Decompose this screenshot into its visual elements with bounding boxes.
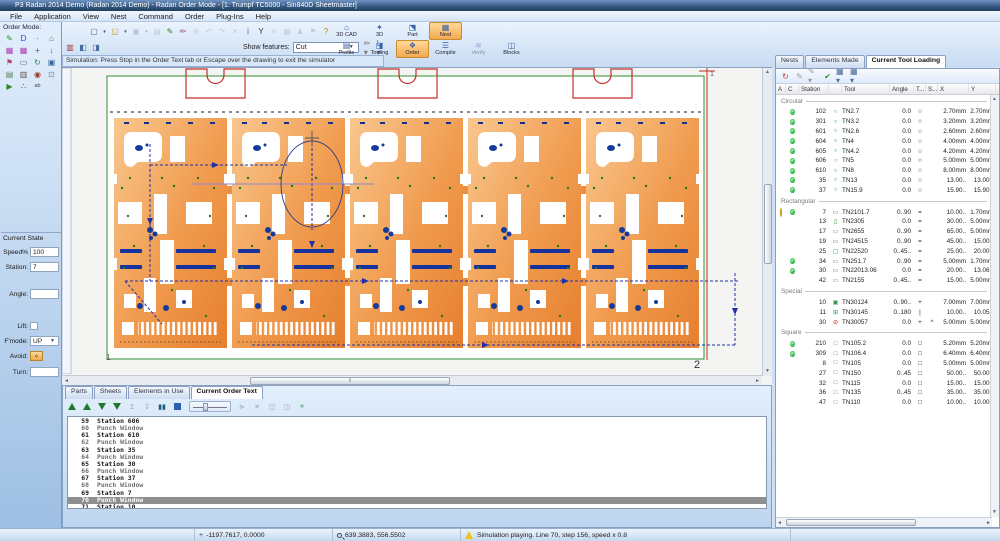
type-symbol-cell: □ [914,399,926,406]
station-cell: 11 [799,309,829,316]
station-cell: 30 [799,319,829,326]
type-symbol-cell: ○ [914,118,926,125]
line-text: Station 10 [97,503,135,509]
pattern1-icon[interactable]: ▦ [3,45,16,57]
angle-cell: 0..45 [890,389,914,396]
y-cell: 10.05.. [969,309,990,316]
y-cell: 1.70mm [969,258,990,265]
tool-shape-icon: ▭ [829,258,842,265]
check-icon: ✓ [790,177,794,183]
y-cell: 2.60mm [969,128,990,135]
module-3d-cad-label: 3D CAD [336,32,357,38]
tool-shape-icon: □ [829,351,842,357]
check-cell: ✓ [786,257,799,265]
run-to-start-button[interactable] [65,400,79,413]
module-compile[interactable]: ☰Compile [429,40,462,58]
check-cell: ✓ [786,350,799,358]
tool-group-special: Special [776,286,990,298]
warning-cell [776,209,786,216]
station-cell: 10 [799,299,829,306]
angle-cell: 0..90 [890,228,914,235]
x-cell: 5.00mm [938,319,969,326]
check-icon: ✓ [790,128,794,134]
order-line[interactable]: 68Punch Window [68,482,766,489]
tool-shape-icon: ▭ [829,228,842,235]
module-tooling[interactable]: ◨Tooling [363,40,396,58]
scrollbar-thumb[interactable] [786,519,916,526]
station-cell: 19 [799,238,829,245]
tab-current-tool-loading[interactable]: Current Tool Loading [866,55,947,68]
angle-cell: 0.0 [890,157,914,164]
angle-cell: 0..90 [890,258,914,265]
tool-row[interactable]: 8□TN1050.0□5.00mm5.00mm [776,359,990,369]
order-line[interactable]: 69Station 7 [68,490,766,497]
order-line[interactable]: 67Station 37 [68,475,766,482]
module-tooling-label: Tooling [371,50,389,56]
column-header[interactable]: T... [914,84,926,95]
tool-shape-icon: □ [829,341,842,347]
line-number: 71 [74,504,89,509]
target-icon[interactable]: ◉ [31,69,44,81]
copy-icon[interactable]: ▣ [45,57,58,69]
y-cell: 20.00.. [969,248,990,255]
y-cell: 8.00mm [969,167,990,174]
station-cell: 301 [799,118,829,125]
play-back-button[interactable] [80,400,94,413]
type-symbol-cell: □ [914,389,926,396]
station-cell: 47 [799,399,829,406]
station-cell: 604 [799,138,829,145]
tool-group-square: Square [776,327,990,339]
order-line[interactable]: 59Station 606 [68,418,766,425]
block2-button[interactable]: ◫ [280,400,294,413]
x-cell: 30.00.. [938,218,969,225]
order-line[interactable]: 62Punch Window [68,439,766,446]
tool-shape-icon: ○ [829,128,842,134]
y-cell: 6.40mm [969,350,990,357]
menu-view[interactable]: View [77,12,105,21]
station-cell: 610 [799,167,829,174]
tool-shape-icon: ▭ [829,238,842,245]
tool-row[interactable]: 32□TN1150.0□15.00..15.00.. [776,378,990,388]
y-cell: 15.00.. [969,238,990,245]
module-part-icon: ⬔ [409,24,417,32]
magnifier-icon [337,533,342,538]
order-text-list[interactable]: 59Station 60660Punch Window61Station 610… [67,416,767,509]
tab-nests[interactable]: Nests [775,55,804,68]
left-sidebar: Order Mode: ✎D·⌂▦▦+↓⚑▭↻▣▤▥◉⊡▶∴ᵃᵇ Current… [0,22,62,528]
check-cell: ✓ [786,137,799,145]
x-cell: 35.00.. [938,389,969,396]
nested-parts [114,118,699,348]
station-cell: 601 [799,128,829,135]
step-back-button[interactable]: ↥ [125,400,139,413]
tool-row[interactable]: ✓210□TN105.20.0□5.20mm5.20mm [776,339,990,349]
tool-shape-icon: ▣ [829,299,842,306]
type-symbol-cell: ○ [914,148,926,155]
rotate-icon[interactable]: ↻ [31,57,44,69]
menu-application[interactable]: Application [28,12,77,21]
run-to-end-button[interactable] [110,400,124,413]
order-line-selected[interactable]: 70Punch Window [68,497,766,504]
column-header[interactable]: Station [799,84,829,95]
tool-row[interactable]: 30⊘TN300570.0+^5.00mm5.00mm [776,317,990,327]
type-symbol-cell: ○ [914,108,926,115]
tool-table-horizontal-scrollbar[interactable]: ◄► [776,517,992,527]
x-cell: 15.00.. [938,380,969,387]
x-cell: 10.00.. [938,309,969,316]
type-symbol-cell: = [914,238,926,245]
tool-row[interactable]: ✓30▭TN22013.060.0=20.00..13.06.. [776,266,990,276]
column-header[interactable]: Angle [890,84,914,95]
tool-row[interactable]: ✓34▭TN251.70..90=5.00mm1.70mm [776,256,990,266]
column-header[interactable]: C [786,84,799,95]
x-cell: 15.90.. [938,187,969,194]
column-header[interactable]: Tool [842,84,890,95]
jump-button[interactable]: ⊳ [235,400,249,413]
y-cell: 4.00mm [969,138,990,145]
column-header[interactable]: Y [969,84,996,95]
tool-shape-icon: ⊘ [829,319,842,326]
check-cell: ✓ [786,208,799,216]
tool-row[interactable]: ✓35○TN130.0○13.00..13.00.. [776,176,990,186]
tool-row[interactable]: ✓37○TN15.90.0○15.90..15.90.. [776,185,990,195]
tool-shape-icon: □ [829,360,842,366]
type-symbol-cell: + [914,299,926,306]
menu-order[interactable]: Order [179,12,210,21]
station-cell: 32 [799,380,829,387]
order-line[interactable]: 71Station 10 [68,504,766,509]
station-cell: 27 [799,370,829,377]
column-header[interactable]: A [776,84,786,95]
check-cell: ✓ [786,147,799,155]
module-3d-label: 3D [376,32,383,38]
x-cell: 4.20mm [938,148,969,155]
tool-name-cell: TN105 [842,360,890,367]
order-line[interactable]: 60Punch Window [68,425,766,432]
order-line[interactable]: 66Punch Window [68,468,766,475]
module-part-label: Part [407,32,417,38]
tool-row[interactable]: 19▭TN245150..90=45.00..15.00.. [776,237,990,247]
play-forward-button[interactable] [95,400,109,413]
check-cell: ✓ [786,186,799,194]
pause-button[interactable]: ▮▮ [155,400,169,413]
right-panel: NestsElements MadeCurrent Tool Loading ↻… [775,55,1000,528]
arrow-down-icon[interactable]: ↓ [45,45,58,57]
tool-row[interactable]: 25▢TN225200..45..=25.00..20.00.. [776,246,990,256]
type-symbol-cell: □ [914,340,926,347]
apply-check-icon[interactable]: ✔ [821,70,834,82]
y-cell: 5.00mm [969,157,990,164]
type-symbol-cell: □ [914,380,926,387]
edit-multi-icon[interactable]: ✎ ▾ [807,70,820,82]
y-cell: 5.00mm [969,319,990,326]
x-cell: 10.00.. [938,399,969,406]
tool-row[interactable]: 47□TN1100.0□10.00..10.00.. [776,398,990,408]
order-line[interactable]: 61Station 610 [68,432,766,439]
check-icon: ✓ [790,138,794,144]
angle-cell: 0.0 [890,360,914,367]
angle-cell: 0.0 [890,167,914,174]
angle-cell: 0..90.. [890,299,914,306]
tool-table-header: ACStationToolAngleT...S...XY [776,84,999,95]
disk-icon[interactable]: ⊡ [45,69,58,81]
menu-nest[interactable]: Nest [105,12,132,21]
tool-name-cell: TN2.7 [842,108,890,115]
tool-shape-icon: ○ [829,148,842,154]
tool-name-cell: TN3.2 [842,118,890,125]
type-symbol-cell: = [914,248,926,255]
angle-cell: 0.0 [890,319,914,326]
station-cell: 25 [799,248,829,255]
tool-row[interactable]: ✓7▭TN2101.70..90=10.00..1.70mm [776,207,990,217]
tool-name-cell: TN5 [842,157,890,164]
cut-line-button[interactable]: ✕ [250,400,264,413]
dots-icon[interactable]: ∴ [17,81,30,93]
tool-table-vertical-scrollbar[interactable]: ▲▼ [990,95,999,517]
tool-row[interactable]: 10▣TN301240..90..+7.00mm7.00mm [776,298,990,308]
tab-sheets[interactable]: Sheets [94,386,127,399]
title-bar: P3 Radan 2014 Demo (Radan 2014 Demo) - R… [0,0,1000,11]
module-verify-label: Verify [472,50,486,56]
tool-row[interactable]: ✓601○TN2.60.0○2.60mm2.60mm [776,127,990,137]
tool-name-cell: TN115 [842,380,890,387]
tool-shape-icon: ⊞ [829,309,842,316]
tool-name-cell: TN2155 [842,277,890,284]
menu-plugins[interactable]: Plug-Ins [210,12,250,21]
module-order-label: Order [405,50,419,56]
station-cell: 13 [799,218,829,225]
angle-cell: 0.0 [890,148,914,155]
tool-row[interactable]: ✓604○TN40.0○4.00mm4.00mm [776,136,990,146]
go-icon[interactable]: ▶ [3,81,16,93]
tool-shape-icon: □ [829,380,842,386]
station-cell: 42 [799,277,829,284]
check-cell: ✓ [786,340,799,348]
menu-command[interactable]: Command [132,12,179,21]
tool-name-cell: TN2101.7 [842,209,890,216]
x-cell: 10.00.. [938,209,969,216]
chevron-down-icon: ▼ [50,337,57,346]
tool-name-cell: TN8 [842,167,890,174]
tool-shape-icon: ○ [829,187,842,193]
angle-cell: 0..45.. [890,248,914,255]
station-cell: 8 [799,360,829,367]
y-cell: 10.00.. [969,399,990,406]
order-line[interactable]: 63Station 35 [68,447,766,454]
tool-shape-icon: ▭ [829,267,842,274]
view-grid2-dropdown[interactable]: ▦ ▾ [849,70,862,82]
house-icon[interactable]: ⌂ [45,33,58,45]
crosshair-icon: + [199,532,203,539]
y-cell: 7.00mm [969,299,990,306]
tool-row[interactable]: 11⊞TN301450..180|10.00..10.05.. [776,307,990,317]
column-header[interactable]: X [938,84,969,95]
column-header[interactable] [829,84,842,95]
window-title: P3 Radan 2014 Demo (Radan 2014 Demo) - R… [15,2,357,9]
tab-current-order-text[interactable]: Current Order Text [191,386,263,399]
station-cell: 35 [799,177,829,184]
tool-shape-icon: ○ [829,109,842,115]
abc-icon[interactable]: ᵃᵇ [31,81,44,93]
tool-name-cell: TN22520 [842,248,890,255]
module-3d-cad[interactable]: ⌂3D CAD [330,22,363,40]
check-icon: ✓ [790,258,794,264]
pattern2-icon[interactable]: ▦ [17,45,30,57]
tool-row[interactable]: ✓605○TN4.20.0○4.20mm4.20mm [776,146,990,156]
tab-parts[interactable]: Parts [65,386,93,399]
tab-elements-in-use[interactable]: Elements in Use [128,386,190,399]
angle-cell: 0.0 [890,380,914,387]
x-cell: 2.70mm [938,108,969,115]
check-icon: ✓ [790,351,794,357]
edit-tool-icon[interactable]: ✎ [793,70,806,82]
film-icon[interactable]: ▥ [17,69,30,81]
step-forward-button[interactable]: ↧ [140,400,154,413]
angle-field[interactable] [30,289,59,299]
ruler-label-left: 1 [106,353,111,362]
block1-button[interactable]: ◫ [265,400,279,413]
check-icon: ✓ [790,341,794,347]
canvas-vertical-scrollbar[interactable]: ▲▼ [762,68,772,376]
menu-help[interactable]: Help [250,12,277,21]
type-symbol-cell: □ [914,360,926,367]
x-cell: 7.00mm [938,299,969,306]
type-symbol-cell: ○ [914,157,926,164]
fmode-select[interactable]: UP▼ [30,336,59,346]
radan-app: { "window": {"title": "P3 Radan 2014 Dem… [0,0,1000,541]
module-3d-cad-icon: ⌂ [344,24,349,32]
dot-icon[interactable]: · [31,33,44,45]
angle-cell: 0..90 [890,238,914,245]
sheet-icon[interactable]: ▤ [3,69,16,81]
tool-row[interactable]: 17▭TN26550..90=65.00..5.00mm [776,227,990,237]
draw-icon[interactable]: ✎ [3,33,16,45]
module-compile-label: Compile [435,50,456,56]
module-blocks[interactable]: ◫Blocks [495,40,528,58]
menu-file[interactable]: File [4,12,28,21]
tool-table: Circular✓102○TN2.70.0○2.70mm2.70mm✓301○T… [776,95,990,517]
refresh-icon[interactable]: ↻ [779,70,792,82]
module-3d[interactable]: ✦3D [363,22,396,40]
x-cell: 65.00.. [938,228,969,235]
module-order[interactable]: ❖Order [396,40,429,58]
lift-checkbox[interactable] [30,322,38,330]
station-cell: 605 [799,148,829,155]
module-part[interactable]: ⬔Part [396,22,429,40]
order-mode-icon-grid: ✎D·⌂▦▦+↓⚑▭↻▣▤▥◉⊡▶∴ᵃᵇ [0,31,61,93]
nest-canvas[interactable]: 1 2 1 ▲▼ ◄► ⦀ [62,67,772,385]
flag-icon[interactable]: ⚑ [3,57,16,69]
avoid-button[interactable]: ▵ [30,351,43,361]
angle-cell: 0.0 [890,350,914,357]
speed-field[interactable]: 100 [30,247,59,257]
scrollbar-thumb[interactable]: ⦀ [250,377,450,385]
simulation-status: Simulation playing. Line 70, step 156, s… [477,532,627,539]
station-field[interactable]: 7 [30,262,59,272]
y-cell: 15.00.. [969,380,990,387]
station-cell: 309 [799,350,829,357]
y-cell: 3.20mm [969,118,990,125]
tool-name-cell: TN105.2 [842,340,890,347]
type-symbol-cell: ○ [914,167,926,174]
module-order-icon: ❖ [409,42,416,50]
simulation-toolbar: ↥↧▮▮⊳✕◫◫» [65,399,310,414]
tool-name-cell: TN251.7 [842,258,890,265]
rect-tool-icon[interactable]: ▭ [17,57,30,69]
angle-cell: 0..180 [890,309,914,316]
scrollbar-thumb[interactable] [764,184,772,264]
warning-icon [465,531,473,539]
canvas-horizontal-scrollbar[interactable]: ◄► ⦀ [62,375,762,385]
tool-row[interactable]: 42▭TN21550..45..=15.00..5.00mm [776,276,990,286]
check-cell: ✓ [786,157,799,165]
type-symbol-cell: ○ [914,187,926,194]
y-cell: 1.70mm [969,209,990,216]
tool-shape-icon: □ [829,400,842,406]
column-header[interactable]: S... [926,84,938,95]
y-cell: 5.20mm [969,340,990,347]
type-symbol-cell: | [914,309,926,316]
tool-row[interactable]: ✓610○TN80.0○8.00mm8.00mm [776,166,990,176]
tool-row[interactable]: ✓301○TN3.20.0○3.20mm3.20mm [776,117,990,127]
view-grid1-dropdown[interactable]: ▦ ▾ [835,70,848,82]
tool-row[interactable]: 13▯TN23050.0=30.00..5.00mm [776,217,990,227]
slider-thumb[interactable] [203,403,208,411]
tool-name-cell: TN15.9 [842,187,890,194]
check-cell: ✓ [786,167,799,175]
module-nest[interactable]: ▦Nest [429,22,462,40]
module-profile[interactable]: ▤Profile [330,40,363,58]
tool-row[interactable]: 36□TN1350..45□35.00..35.00.. [776,388,990,398]
part-icon[interactable]: D [17,33,30,45]
tool-row[interactable]: ✓309□TN106.40.0□6.40mm6.40mm [776,349,990,359]
tool-row[interactable]: 27□TN1500..45□50.00..50.00.. [776,368,990,378]
speed-slider[interactable] [189,401,231,412]
tool-row[interactable]: ✓606○TN50.0○5.00mm5.00mm [776,156,990,166]
turn-field[interactable] [30,367,59,377]
tool-shape-icon: ▯ [829,218,842,225]
x-cell: 3.20mm [938,118,969,125]
order-line[interactable]: 65Station 30 [68,461,766,468]
type-symbol-cell: = [914,218,926,225]
tool-name-cell: TN4.2 [842,148,890,155]
angle-cell: 0.0 [890,218,914,225]
tool-shape-icon: ▭ [829,209,842,216]
ruler-label-top-right: 1 [710,71,714,78]
check-cell: ✓ [786,267,799,275]
module-verify[interactable]: ≋Verify [462,40,495,58]
y-cell: 5.00mm [969,228,990,235]
tool-shape-icon: □ [829,390,842,396]
tool-row[interactable]: ✓102○TN2.70.0○2.70mm2.70mm [776,107,990,117]
nest-drawing: 1 2 1 [62,68,760,374]
x-cell: 5.00mm [938,258,969,265]
angle-cell: 0.0 [890,138,914,145]
module-blocks-icon: ◫ [508,42,516,50]
angle-cell: 0..45.. [890,277,914,284]
move-icon[interactable]: + [31,45,44,57]
order-line[interactable]: 64Punch Window [68,454,766,461]
y-cell: 2.70mm [969,108,990,115]
angle-cell: 0.0 [890,399,914,406]
station-cell: 7 [799,209,829,216]
module-profile-icon: ▤ [343,42,351,50]
stop-button[interactable] [170,400,184,413]
more-button[interactable]: » [295,400,309,413]
check-icon: ✓ [790,158,794,164]
order-mode-label: Order Mode: [0,22,61,31]
